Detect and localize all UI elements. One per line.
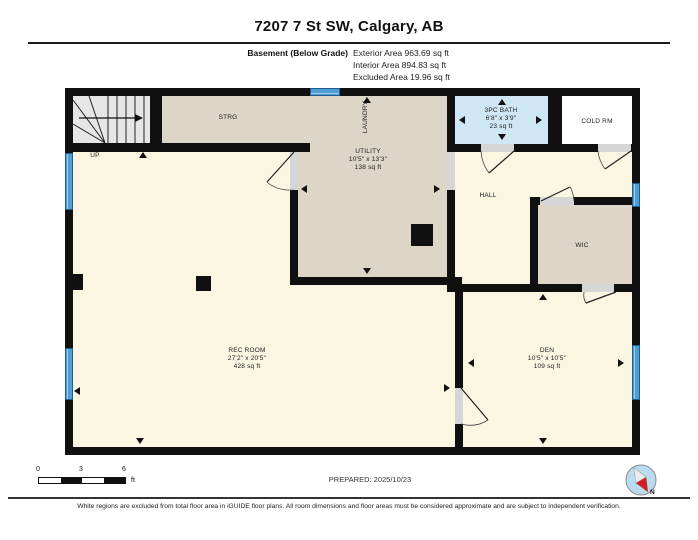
den-dims: 10'5" x 10'5" [497,355,597,363]
bath-name: 3PC BATH [461,107,541,115]
scale-tick-0: 0 [36,466,40,473]
bath-dims: 6'8" x 3'9" [461,115,541,123]
floor-level-label: Basement (Below Grade) [140,48,348,58]
dimension-arrow-left [468,359,474,367]
title-divider [28,42,670,44]
door-threshold [598,144,631,152]
opening-threshold [447,152,455,190]
scale-segment [39,478,61,483]
exterior-area: Exterior Area 963.69 sq ft [353,48,553,58]
wall [455,292,463,388]
scale-segment [104,478,126,483]
dimension-arrow-right [434,185,440,193]
dimension-arrow-up [539,294,547,300]
utility-dims: 10'5" x 13'3" [318,156,418,164]
wall [447,96,455,152]
window [632,345,640,400]
scale-unit: ft [131,477,135,484]
dimension-arrow-right [444,384,450,392]
door-threshold [540,197,574,205]
disclaimer-text: White regions are excluded from total fl… [0,503,698,510]
door-threshold [582,284,614,292]
den-name: DEN [497,347,597,355]
wall [455,144,481,152]
dimension-arrow-up [139,152,147,158]
wall [514,144,548,152]
dimension-arrow-right [618,359,624,367]
label-wic: WIC [552,242,612,250]
window [65,153,73,210]
window [65,348,73,400]
label-utility: UTILITY 10'5" x 13'3" 138 sq ft [318,148,418,172]
wall [614,284,640,292]
dimension-arrow-down [539,438,547,444]
bath-area: 23 sq ft [461,123,541,131]
utility-name: UTILITY [318,148,418,156]
dimension-arrow-down [363,268,371,274]
wall [562,144,598,152]
utility-area: 138 sq ft [318,164,418,172]
page-title: 7207 7 St SW, Calgary, AB [0,18,698,35]
wall [530,197,540,205]
den-area: 109 sq ft [497,363,597,371]
scale-segment [82,478,104,483]
door-threshold [455,388,463,424]
staircase [73,96,150,143]
label-rec-room: REC ROOM 27'2" x 20'5" 428 sq ft [197,347,297,371]
prepared-date: PREPARED: 2025/10/23 [270,475,470,484]
label-bath: 3PC BATH 6'8" x 3'9" 23 sq ft [461,107,541,131]
scale-tick-6: 6 [122,466,126,473]
wall [631,144,640,152]
room-utility [298,96,447,277]
wall [290,277,462,285]
rec-area: 428 sq ft [197,363,297,371]
label-den: DEN 10'5" x 10'5" 109 sq ft [497,347,597,371]
scale-segment [61,478,83,483]
wall [530,205,538,292]
furnace [411,224,433,246]
wall [447,190,455,285]
window [310,88,340,96]
wall [574,197,632,205]
window [632,183,640,207]
label-hall: HALL [458,192,518,200]
door-threshold [290,152,298,190]
footer-divider [8,497,690,499]
dimension-arrow-left [74,387,80,395]
dimension-arrow-down [498,134,506,140]
support-post [196,276,211,291]
excluded-area: Excluded Area 19.96 sq ft [353,72,553,82]
wall [65,143,310,152]
door-threshold [481,144,514,152]
compass-north-label: N [650,489,655,496]
rec-name: REC ROOM [197,347,297,355]
rec-dims: 27'2" x 20'5" [197,355,297,363]
floor-plan-page: 7207 7 St SW, Calgary, AB Basement (Belo… [0,0,698,540]
label-storage: STRG [193,114,263,122]
dimension-arrow-left [301,185,307,193]
dimension-arrow-down [136,438,144,444]
scale-tick-3: 3 [79,466,83,473]
wall [447,284,582,292]
wall-notch [73,274,83,290]
wall [548,96,562,152]
wall [455,424,463,447]
scale-bar [38,477,126,484]
floor-plan: STRG LAUNDRY UTILITY 10'5" x 13'3" 138 s… [65,88,640,455]
label-cold-room: COLD RM [562,118,632,126]
label-up: UP [85,152,105,160]
label-laundry: LAUNDRY [362,87,370,147]
wall [150,96,162,143]
interior-area: Interior Area 894.83 sq ft [353,60,553,70]
dimension-arrow-up [498,99,506,105]
